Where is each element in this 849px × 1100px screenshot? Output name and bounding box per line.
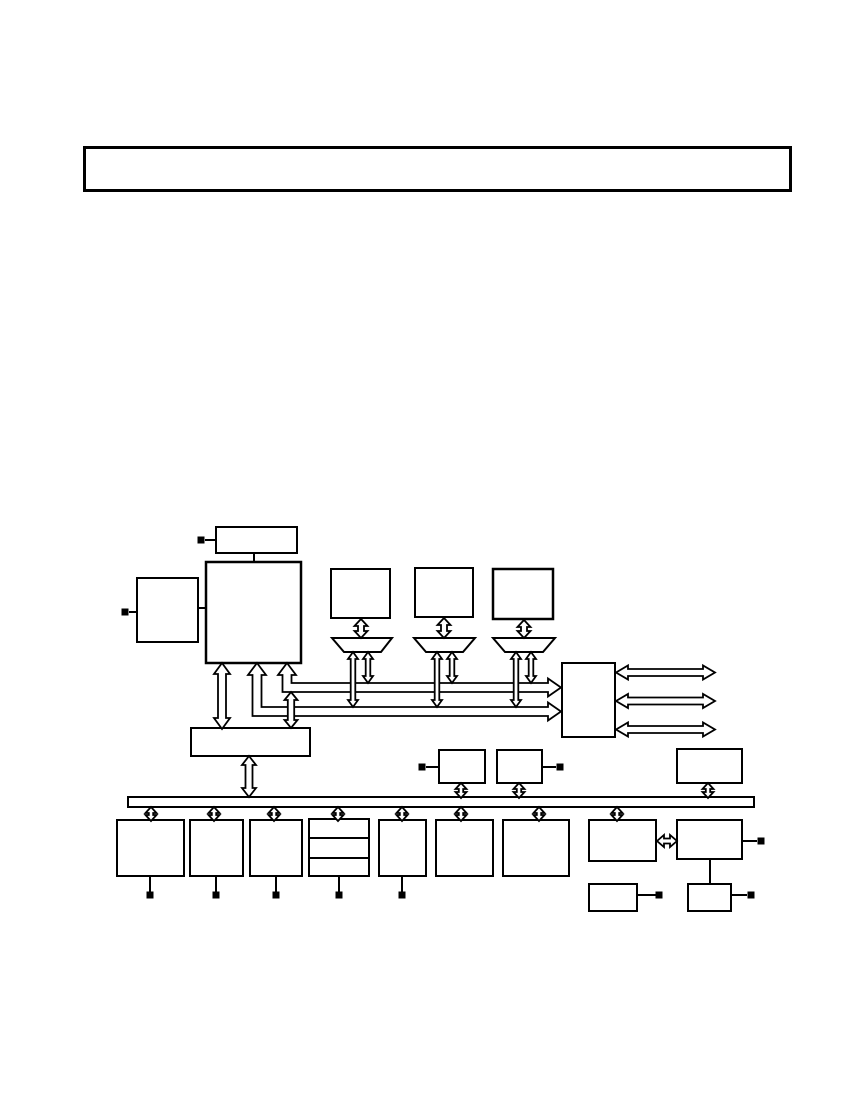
- bottom-box-4: [309, 819, 369, 876]
- terminal-box-9: [758, 838, 765, 845]
- arrow-mux-2-upper-bus: [447, 652, 457, 683]
- arrow-bus-bottom-box-1: [146, 807, 157, 821]
- arrow-bus-bottom-box-5: [397, 807, 408, 821]
- arrow-io-right-2: [616, 694, 715, 708]
- bottom-box-10: [589, 884, 637, 911]
- arrow-middle-box-to-bus: [242, 756, 256, 797]
- arrow-cpu-to-middle-box: [214, 663, 230, 729]
- bottom-box-6: [436, 820, 493, 876]
- bottom-box-3: [250, 820, 302, 876]
- terminal-box-4: [336, 892, 343, 899]
- bottom-box-5: [379, 820, 426, 876]
- terminal-above-bus-right: [557, 764, 564, 771]
- arrow-mux-3-lower-bus: [511, 652, 521, 707]
- terminal-left-io: [122, 609, 129, 616]
- arrow-mux-1-lower-bus: [348, 652, 358, 707]
- arrow-bus-above-far-right-box: [703, 783, 714, 798]
- arrow-upper-box-2-mux-2: [438, 618, 451, 638]
- arrow-bus-bottom-box-2: [209, 807, 220, 821]
- upper-box-3: [493, 569, 553, 619]
- cpu-main-box: [206, 562, 301, 663]
- terminal-above-bus-left: [419, 764, 426, 771]
- arrow-upper-box-3-mux-3: [518, 620, 531, 638]
- terminal-box-3: [273, 892, 280, 899]
- arrow-mux-1-upper-bus: [363, 652, 373, 683]
- top-connector-box: [216, 527, 297, 553]
- mux-1: [332, 638, 392, 652]
- terminal-box-5: [399, 892, 406, 899]
- upper-box-2: [415, 568, 473, 617]
- mux-2: [414, 638, 475, 652]
- terminal-box-11: [748, 892, 755, 899]
- arrow-bus-bottom-box-6: [456, 807, 467, 821]
- arrow-upper-box-1-mux-1: [355, 619, 368, 638]
- terminal-top-connector: [198, 537, 205, 544]
- mux-3: [493, 638, 555, 652]
- arrow-bus-bottom-box-7: [534, 807, 545, 821]
- above-bus-box-far-right: [677, 749, 742, 783]
- bottom-box-2: [190, 820, 243, 876]
- bottom-box-1: [117, 820, 184, 876]
- right-interface-box: [562, 663, 615, 737]
- terminal-box-2: [213, 892, 220, 899]
- arrow-io-right-1: [616, 666, 715, 680]
- above-bus-box-right: [497, 750, 542, 783]
- block-diagram: [0, 0, 849, 1100]
- arrow-mux-2-lower-bus: [432, 652, 442, 707]
- left-io-box: [137, 578, 198, 642]
- system-bus-bar: [128, 797, 754, 807]
- upper-box-1: [331, 569, 390, 618]
- bottom-box-8: [589, 820, 656, 861]
- document-page: [0, 0, 849, 1100]
- terminal-box-10: [656, 892, 663, 899]
- arrow-bus-bottom-box-3: [269, 807, 280, 821]
- above-bus-box-left: [439, 750, 485, 783]
- arrow-bus-above-right-box: [514, 783, 525, 798]
- bottom-box-11: [688, 884, 731, 911]
- bottom-box-7: [503, 820, 569, 876]
- arrow-mux-3-upper-bus: [526, 652, 536, 683]
- arrow-io-right-3: [616, 723, 715, 737]
- arrow-bus-bottom-box-8: [612, 807, 623, 821]
- wide-middle-box: [191, 728, 310, 756]
- terminal-box-1: [147, 892, 154, 899]
- bottom-box-9: [677, 820, 742, 859]
- arrow-bus-above-left-box: [456, 783, 467, 798]
- arrow-box8-box9: [657, 835, 677, 847]
